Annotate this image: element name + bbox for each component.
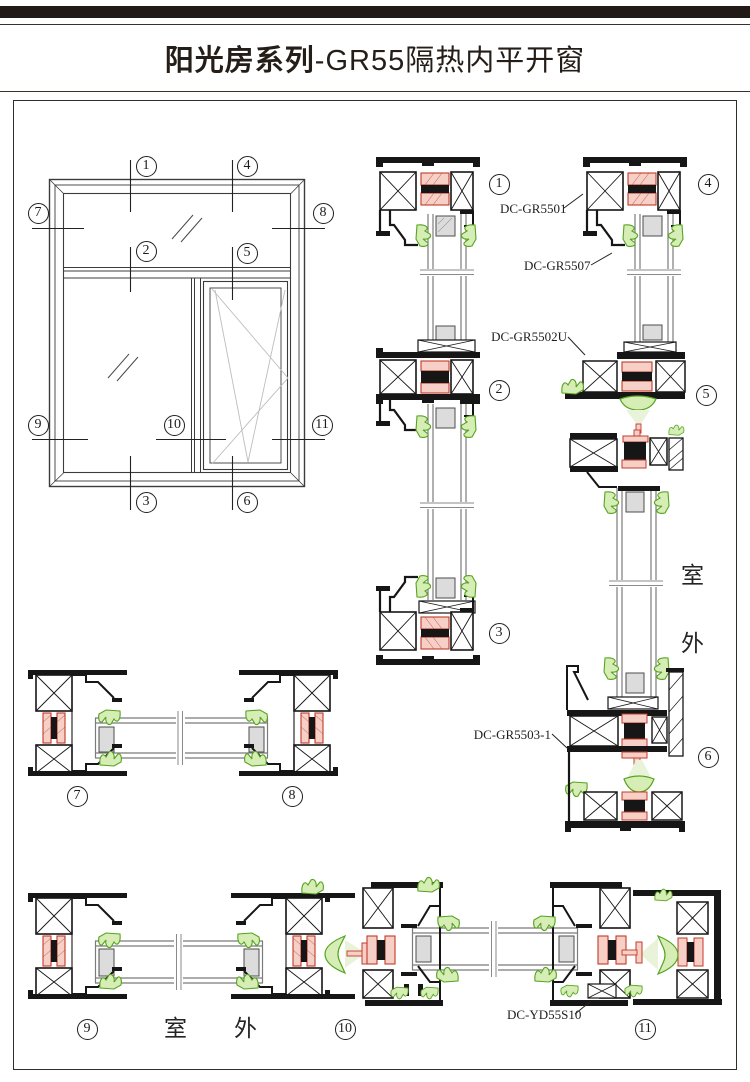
- opening-direction-lines: [212, 289, 288, 464]
- detail-9-jamb-section: [28, 893, 127, 999]
- elevation-marker-10: 10: [164, 415, 185, 436]
- window-elevation: [50, 180, 305, 487]
- detail-7-jamb-section: [28, 670, 127, 776]
- glass-symbol-slashes: [108, 215, 202, 381]
- casement-sash: [204, 282, 288, 470]
- elevation-marker-5: 5: [237, 243, 258, 264]
- detail-marker-9: 9: [77, 1019, 98, 1040]
- elevation-marker-9: 9: [28, 415, 49, 436]
- detail-marker-1: 1: [489, 174, 510, 195]
- part-label-head-frame: DC-GR5501: [500, 201, 564, 217]
- elevation-marker-7: 7: [28, 203, 49, 224]
- elevation-marker-8: 8: [313, 203, 334, 224]
- detail-marker-8: 8: [282, 786, 303, 807]
- elevation-marker-1: 1: [136, 156, 157, 177]
- detail-marker-3: 3: [489, 623, 510, 644]
- part-label-sash-profile: DC-GR5507: [524, 258, 590, 274]
- outdoor-label-horizontal-char2: 外: [234, 1009, 257, 1043]
- elevation-marker-2: 2: [136, 241, 157, 262]
- detail-marker-5: 5: [696, 385, 717, 406]
- glass-units: [95, 214, 681, 990]
- detail-5-transom-sash-section: [562, 342, 685, 513]
- outdoor-label-vertical-char1: 室: [681, 556, 704, 590]
- detail-3-sill-section: [376, 576, 480, 665]
- detail-marker-10: 10: [335, 1019, 356, 1040]
- outdoor-label-vertical-char2: 外: [681, 624, 704, 658]
- detail-marker-2: 2: [489, 380, 510, 401]
- elevation-marker-11: 11: [312, 415, 333, 436]
- detail-marker-6: 6: [698, 747, 719, 768]
- part-label-bottom-rail: DC-GR5503-1: [472, 727, 551, 743]
- technical-drawing: [0, 0, 750, 1082]
- part-label-mid-rail: DC-GR5502U: [490, 329, 567, 345]
- detail-marker-4: 4: [698, 174, 719, 195]
- outdoor-label-horizontal-char1: 室: [164, 1009, 187, 1043]
- elevation-marker-6: 6: [237, 492, 258, 513]
- detail-marker-7: 7: [67, 786, 88, 807]
- elevation-marker-4: 4: [237, 156, 258, 177]
- detail-8-jamb-section: [239, 670, 338, 776]
- detail-1-head-section: [376, 157, 480, 246]
- elevation-marker-3: 3: [136, 492, 157, 513]
- detail-marker-11: 11: [635, 1019, 656, 1040]
- part-label-drain-part: DC-YD55S10: [507, 1007, 574, 1023]
- detail-4-head-section: [583, 157, 687, 246]
